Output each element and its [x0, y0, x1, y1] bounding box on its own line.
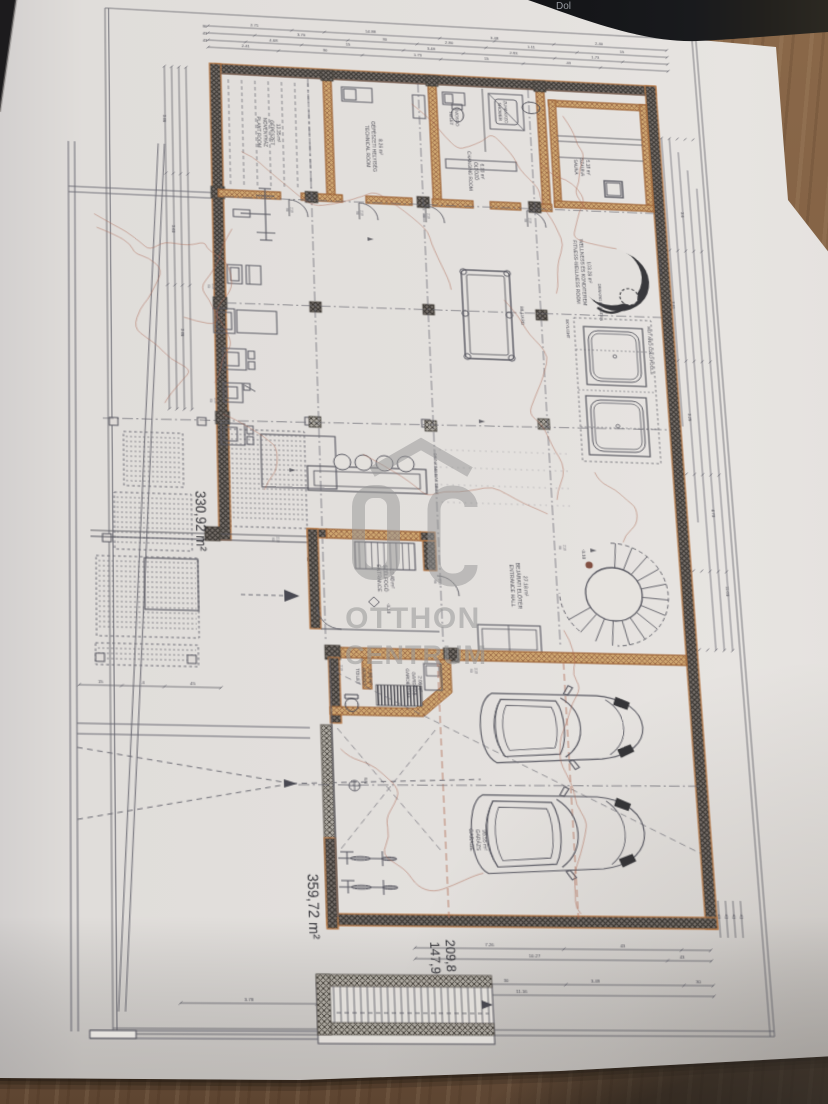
svg-text:Dol: Dol: [556, 1, 571, 12]
